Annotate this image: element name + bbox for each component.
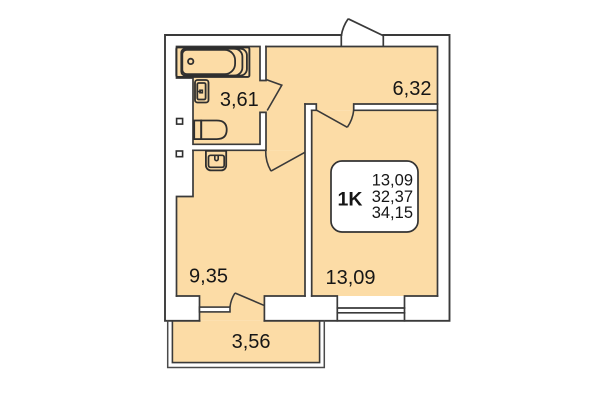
svg-text:3,56: 3,56 [232,331,271,353]
svg-text:34,15: 34,15 [372,204,413,222]
svg-text:3,61: 3,61 [220,89,259,111]
svg-text:9,35: 9,35 [189,266,228,288]
svg-text:13,09: 13,09 [325,267,375,289]
svg-text:6,32: 6,32 [393,78,432,100]
svg-text:1K: 1K [338,189,363,211]
